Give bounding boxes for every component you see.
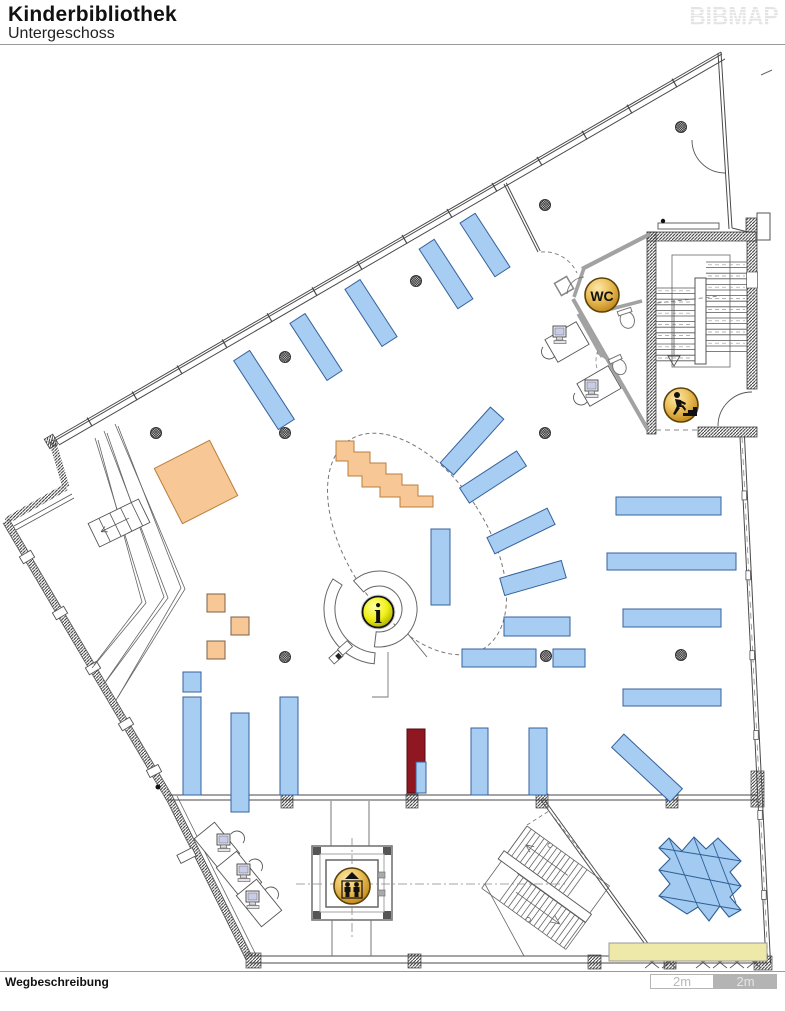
- svg-text:i: i: [374, 599, 382, 630]
- svg-text:WC: WC: [590, 288, 613, 304]
